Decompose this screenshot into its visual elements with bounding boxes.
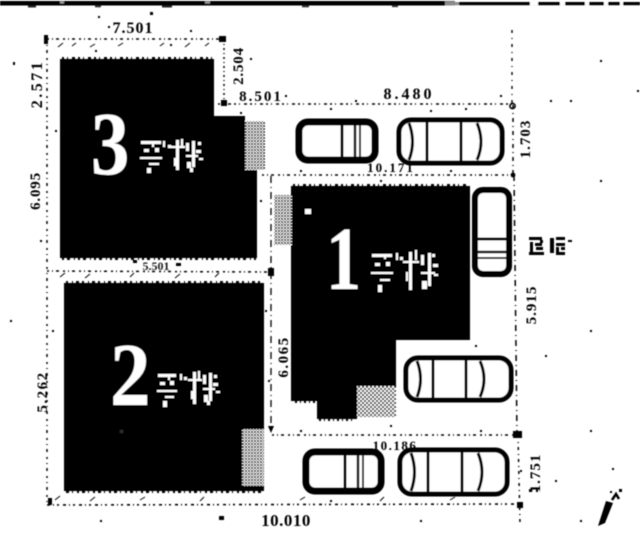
svg-text:1.703: 1.703 — [518, 120, 534, 159]
svg-text:8.480: 8.480 — [384, 86, 435, 103]
svg-text:5.501: 5.501 — [143, 259, 170, 273]
svg-text:6.095: 6.095 — [28, 172, 44, 210]
svg-text:8.501: 8.501 — [239, 89, 283, 105]
svg-text:2.571: 2.571 — [29, 60, 46, 109]
svg-text:10.010: 10.010 — [261, 511, 311, 530]
svg-text:2: 2 — [110, 325, 151, 425]
svg-text:5.915: 5.915 — [524, 286, 540, 325]
svg-text:5.262: 5.262 — [35, 371, 51, 412]
svg-text:6.065: 6.065 — [276, 336, 292, 377]
svg-text:2.504: 2.504 — [231, 47, 247, 85]
svg-text:3: 3 — [91, 95, 129, 194]
svg-text:1: 1 — [326, 210, 361, 309]
svg-text:1.751: 1.751 — [528, 454, 544, 493]
svg-text:7.501: 7.501 — [113, 20, 154, 37]
